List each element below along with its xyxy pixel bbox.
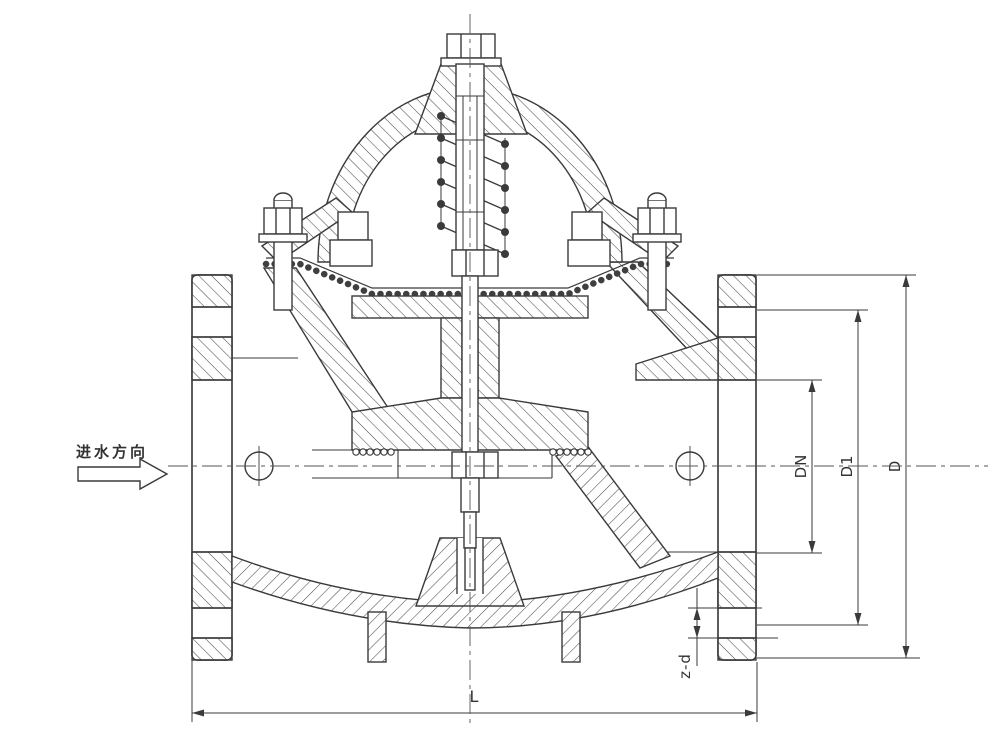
dimension-dn: DN bbox=[757, 380, 822, 553]
dim-label-zd: z-d bbox=[676, 653, 694, 679]
partition-wall bbox=[556, 444, 670, 568]
right-flange bbox=[718, 275, 756, 660]
left-leg bbox=[368, 612, 386, 662]
stem-web-right bbox=[478, 318, 499, 398]
stem-nut-upper bbox=[452, 250, 498, 276]
left-flange bbox=[192, 275, 232, 660]
dim-label-l: L bbox=[470, 687, 479, 706]
right-leg bbox=[562, 612, 580, 662]
valve-cross-section-drawing: DN D1 D z-d L 进水方向 bbox=[0, 0, 1000, 750]
seat-lines bbox=[312, 450, 552, 478]
cap-nut bbox=[447, 34, 495, 58]
stem-nut-lower bbox=[452, 452, 498, 478]
flow-direction-label: 进水方向 bbox=[76, 443, 148, 461]
flow-direction-arrow bbox=[78, 459, 167, 489]
outlet-top-wall bbox=[636, 338, 718, 380]
valve-technical-drawing-page: DN D1 D z-d L 进水方向 bbox=[0, 0, 1000, 750]
flow-annotation: 进水方向 bbox=[76, 443, 167, 489]
stem-web-left bbox=[441, 318, 462, 398]
